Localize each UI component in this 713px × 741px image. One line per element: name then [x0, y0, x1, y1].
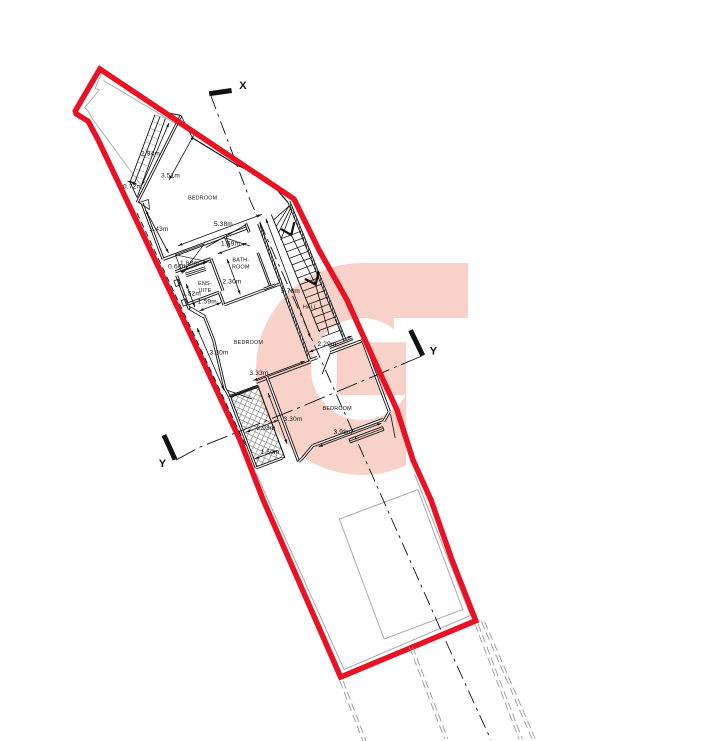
svg-text:BEDROOM: BEDROOM — [323, 406, 353, 412]
svg-text:BEDROOM: BEDROOM — [188, 196, 218, 202]
svg-text:Y: Y — [430, 346, 438, 358]
svg-text:X: X — [239, 80, 247, 92]
svg-text:3.30m: 3.30m — [209, 350, 228, 357]
svg-text:3.51m: 3.51m — [161, 173, 180, 180]
svg-text:1.59m: 1.59m — [198, 299, 217, 306]
svg-text:HALL: HALL — [303, 305, 317, 311]
svg-text:ROOM: ROOM — [232, 265, 250, 271]
svg-text:3.30m: 3.30m — [283, 416, 302, 423]
svg-text:1.50m: 1.50m — [260, 449, 279, 456]
svg-text:0.72m: 0.72m — [123, 184, 142, 191]
svg-text:2.94m: 2.94m — [141, 151, 160, 158]
svg-text:1.59m: 1.59m — [221, 241, 240, 248]
svg-text:2.30m: 2.30m — [222, 279, 241, 286]
svg-text:ENS-: ENS- — [198, 281, 212, 287]
svg-text:3.98m: 3.98m — [333, 429, 352, 436]
svg-text:2.29m: 2.29m — [317, 341, 336, 348]
svg-text:Y: Y — [159, 458, 167, 470]
svg-text:BATH-: BATH- — [232, 257, 249, 263]
svg-text:2.93m: 2.93m — [256, 425, 275, 432]
svg-text:0.60m: 0.60m — [168, 264, 187, 271]
svg-text:3.33m: 3.33m — [249, 370, 268, 377]
svg-text:2.43m: 2.43m — [150, 226, 169, 233]
svg-text:BEDROOM: BEDROOM — [234, 340, 264, 346]
svg-text:5.38m: 5.38m — [214, 221, 233, 228]
svg-text:5.78m: 5.78m — [281, 288, 300, 295]
svg-text:1.52m: 1.52m — [182, 291, 201, 298]
